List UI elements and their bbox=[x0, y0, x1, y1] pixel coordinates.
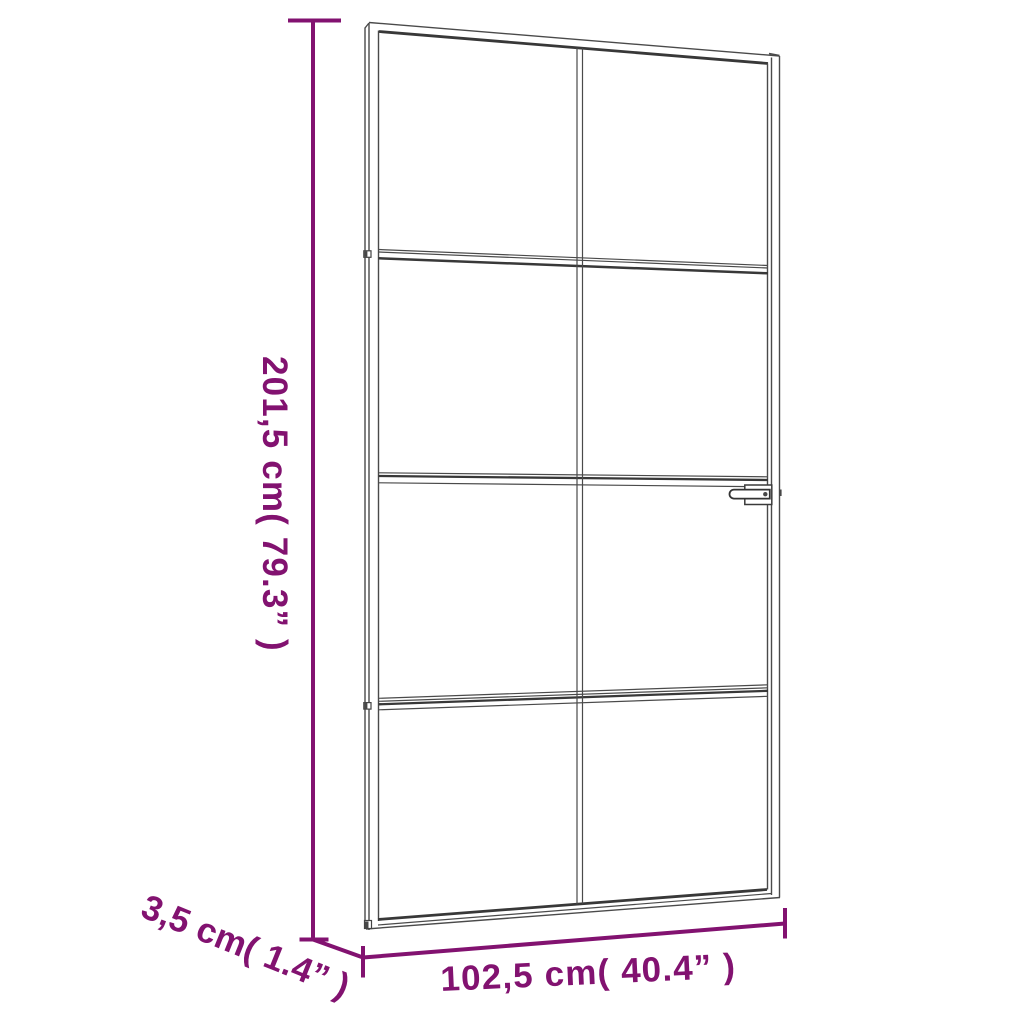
svg-text:201,5 cm( 79.3” ): 201,5 cm( 79.3” ) bbox=[255, 356, 294, 652]
